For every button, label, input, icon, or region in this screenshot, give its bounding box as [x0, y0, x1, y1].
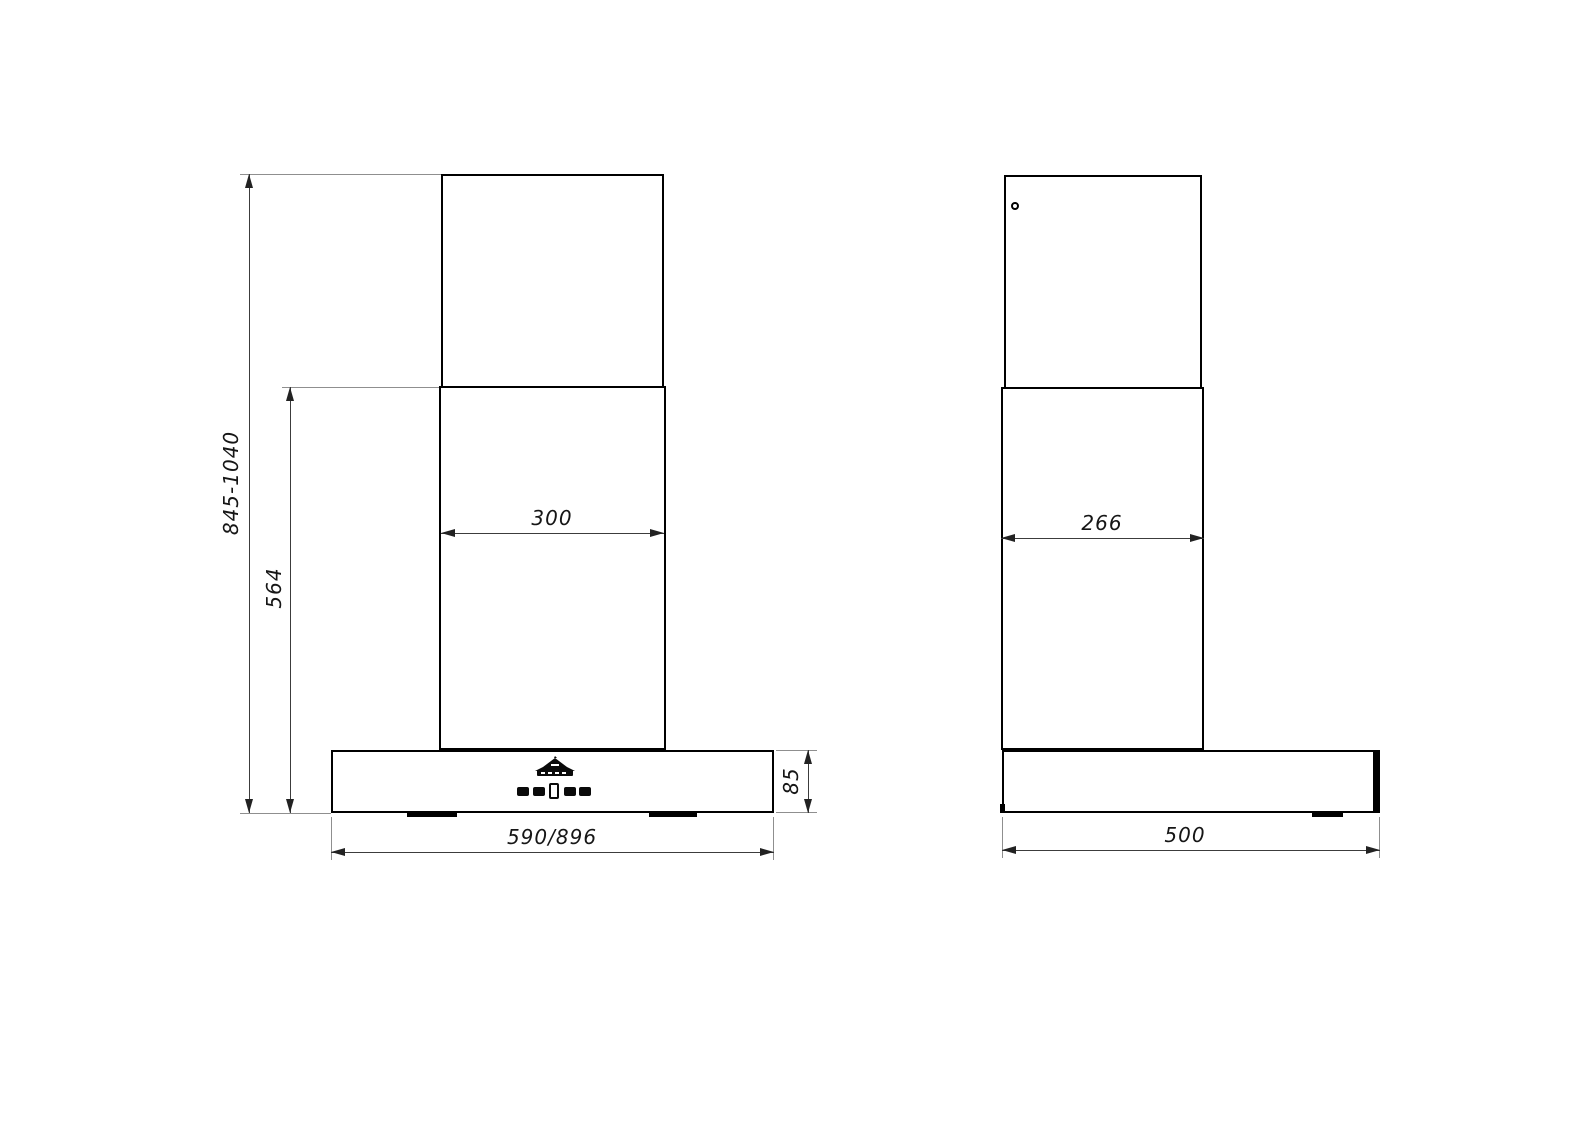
- dimension-line: [290, 387, 291, 813]
- dimension-line: [249, 174, 250, 813]
- arrowhead-icon: [1002, 846, 1016, 854]
- arrowhead-icon: [804, 750, 812, 764]
- dim-body-width-label: 590/896: [507, 825, 597, 849]
- arrowhead-icon: [286, 387, 294, 401]
- side-hood-body: [1002, 750, 1380, 813]
- arrowhead-icon: [331, 848, 345, 856]
- dim-chimney-width-label: 300: [531, 506, 572, 530]
- dim-lower-height-label: 564: [262, 567, 286, 608]
- dimension-line: [1001, 538, 1204, 539]
- brand-crown-logo-icon: [531, 755, 579, 779]
- dimension-line: [1002, 850, 1380, 851]
- screw-hole-icon: [1011, 202, 1019, 210]
- front-bottom-panel-strip-right: [649, 813, 697, 817]
- side-front-edge-bar: [1373, 750, 1380, 813]
- side-rear-corner-mark: [1000, 804, 1005, 813]
- arrowhead-icon: [1001, 534, 1015, 542]
- side-chimney-lower-section: [1001, 387, 1204, 750]
- technical-drawing-canvas: 845-1040 564 300 85 590/896: [0, 0, 1588, 1123]
- side-bottom-panel-strip: [1312, 813, 1343, 817]
- front-bottom-panel-strip-left: [407, 813, 457, 817]
- side-chimney-upper-section: [1004, 175, 1202, 389]
- extension-line: [282, 387, 439, 388]
- dim-overall-height-label: 845-1040: [219, 431, 243, 535]
- front-chimney-upper-section: [441, 174, 664, 388]
- dim-body-depth-label: 500: [1164, 823, 1205, 847]
- dim-body-height-label: 85: [779, 767, 803, 794]
- arrowhead-icon: [804, 799, 812, 813]
- arrowhead-icon: [1190, 534, 1204, 542]
- display-window-icon: [549, 783, 559, 799]
- arrowhead-icon: [650, 529, 664, 537]
- arrowhead-icon: [286, 799, 294, 813]
- dimension-line: [441, 533, 664, 534]
- arrowhead-icon: [760, 848, 774, 856]
- arrowhead-icon: [245, 174, 253, 188]
- front-chimney-lower-section: [439, 386, 666, 750]
- control-button-icon: [517, 787, 529, 796]
- control-button-icon: [564, 787, 576, 796]
- arrowhead-icon: [1366, 846, 1380, 854]
- dim-chimney-depth-label: 266: [1081, 511, 1122, 535]
- control-button-icon: [533, 787, 545, 796]
- arrowhead-icon: [245, 799, 253, 813]
- control-button-icon: [579, 787, 591, 796]
- extension-line: [240, 174, 441, 175]
- extension-line: [240, 813, 331, 814]
- arrowhead-icon: [441, 529, 455, 537]
- dimension-line: [331, 852, 774, 853]
